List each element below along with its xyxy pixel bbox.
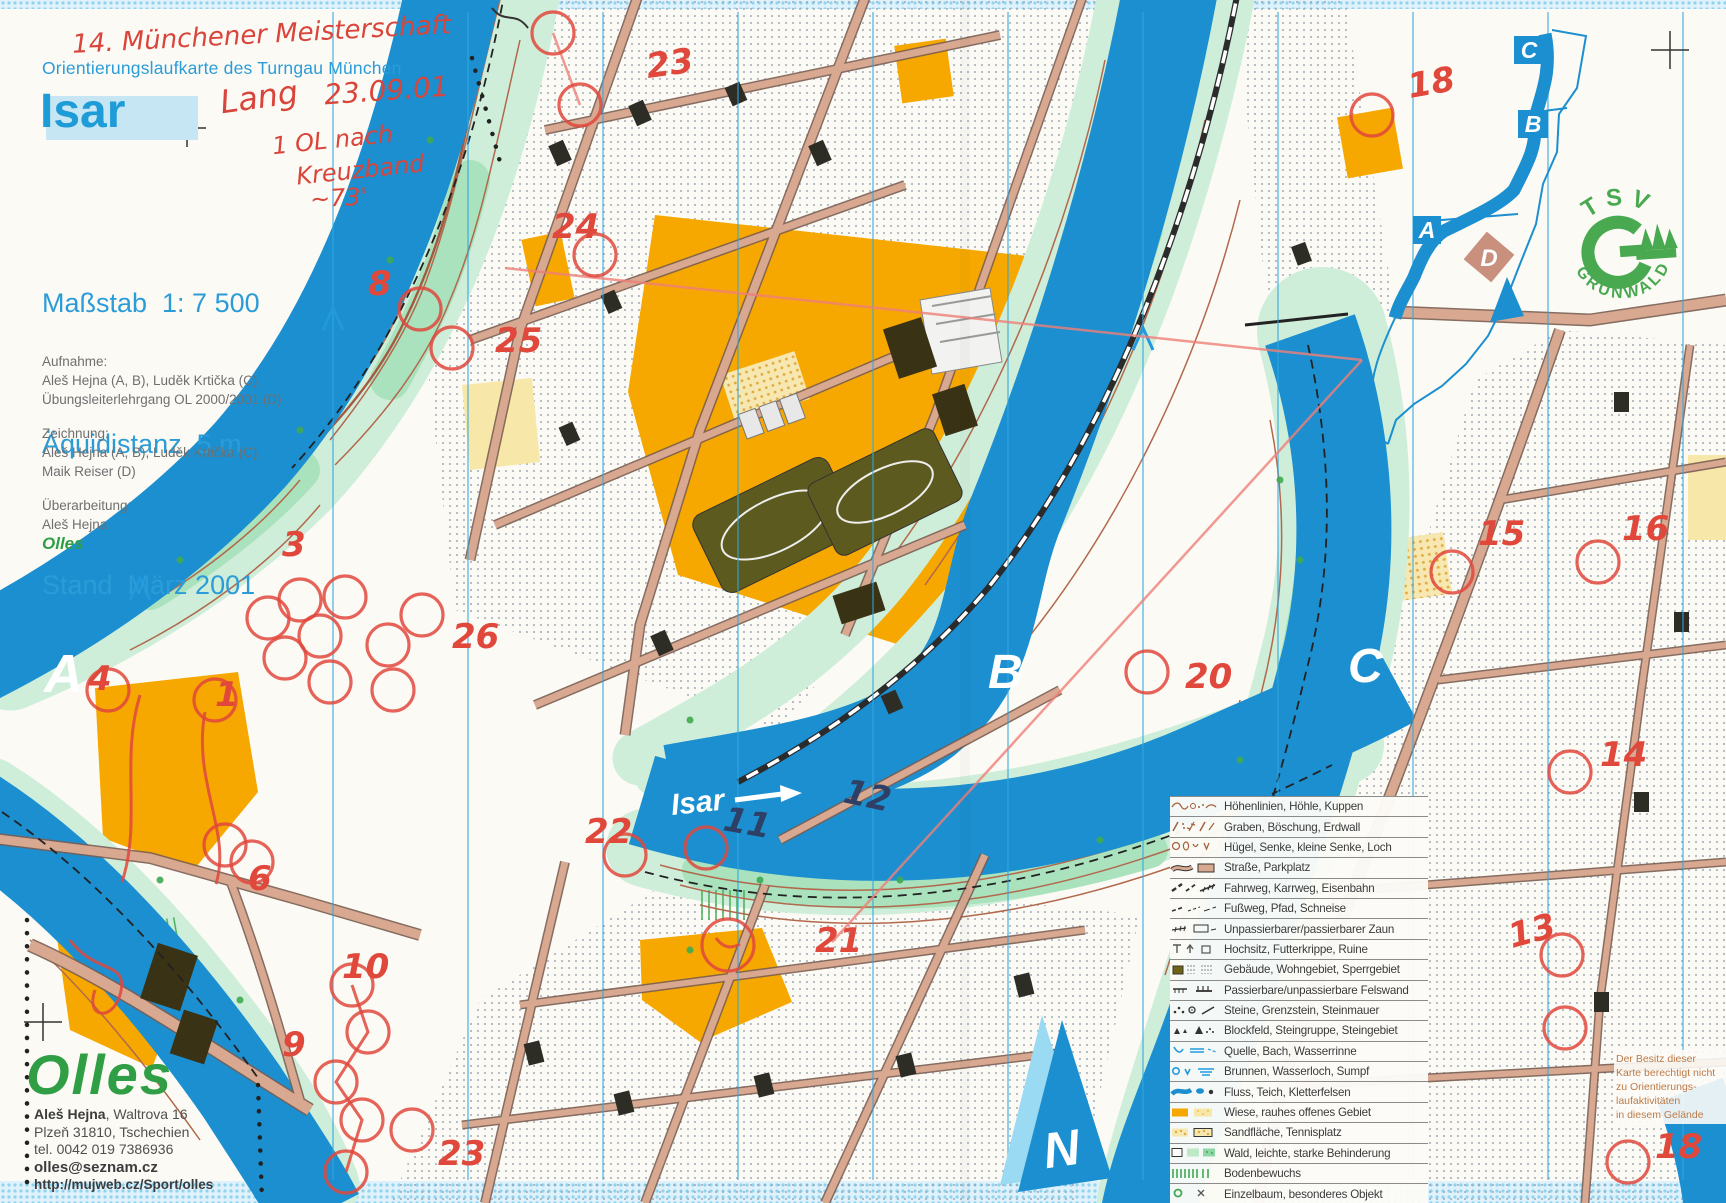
control-number: 9 [282,1025,306,1065]
legend-label: Quelle, Bach, Wasserrinne [1224,1045,1356,1058]
legend-label: Fahrweg, Karrweg, Eisenbahn [1224,882,1375,895]
credits-block: Aufnahme: Aleš Hejna (A, B), Luděk Krtič… [42,352,282,568]
fahrweg-icon [1170,880,1224,896]
olles-logo: Olles [26,1042,173,1107]
legend-row: Steine, Grenzstein, Steinmauer [1170,1000,1428,1020]
hochsitz-icon [1170,941,1224,957]
legend-label: Blockfeld, Steingruppe, Steingebiet [1224,1024,1397,1037]
legend-label: Gebäude, Wohngebiet, Sperrgebiet [1224,963,1400,976]
disclaimer-line: laufaktivitäten [1616,1094,1726,1108]
legend-label: Hochsitz, Futterkrippe, Ruine [1224,943,1368,956]
steine-icon [1170,1003,1224,1019]
control-number: 25 [495,321,542,361]
legend-row: Wald, leichte, starke Behinderung [1170,1143,1428,1163]
blockfeld-icon [1170,1023,1224,1039]
publisher-address: Aleš Hejna, Waltrova 16 Plzeň 31810, Tsc… [34,1106,213,1194]
legend-label: Sandfläche, Tennisplatz [1224,1126,1342,1139]
legend-box: Höhenlinien, Höhle, KuppenGraben, Böschu… [1170,796,1428,1203]
overview-label-c: C [1521,37,1538,63]
legend-label: Fußweg, Pfad, Schneise [1224,902,1346,915]
publisher-phone: tel. 0042 019 7386936 [34,1141,213,1159]
felswand-icon [1170,982,1224,998]
handwritten-time: ~73' [309,183,368,214]
legend-row: Einzelbaum, besonderes Objekt [1170,1183,1428,1203]
disclaimer-line: Der Besitz dieser [1616,1052,1726,1066]
control-number: 11 [720,799,774,847]
survey-credit: Aufnahme: Aleš Hejna (A, B), Luděk Krtič… [42,352,282,409]
legend-label: Höhenlinien, Höhle, Kuppen [1224,800,1363,813]
quelle-icon [1170,1043,1224,1059]
legend-label: Einzelbaum, besonderes Objekt [1224,1188,1383,1201]
legend-row: Höhenlinien, Höhle, Kuppen [1170,796,1428,816]
legend-row: Brunnen, Wasserloch, Sumpf [1170,1061,1428,1081]
legend-row: Fahrweg, Karrweg, Eisenbahn [1170,878,1428,898]
control-number: 26 [452,617,499,657]
control-number: 23 [438,1134,485,1174]
sand-icon [1170,1125,1224,1141]
survey-heading: Aufnahme: [42,352,282,371]
control-number: 16 [1622,509,1669,549]
revision-olles: Olles [42,534,282,553]
graben-icon [1170,819,1224,835]
publisher-city: Plzeň 31810, Tschechien [34,1124,213,1142]
control-number: 6 [248,859,272,899]
overview-label-b: B [1525,111,1542,137]
legend-row: Unpassierbarer/passierbarer Zaun [1170,918,1428,938]
revision-credit: Überarbeitung: Aleš Hejna Olles [42,496,282,553]
disclaimer-line: Karte berechtigt nicht [1616,1066,1726,1080]
wald-icon [1170,1145,1224,1161]
river-label: Isar [669,783,728,822]
drawing-line1: Aleš Hejna (A, B), Luděk Krtička (C), [42,443,282,462]
map-disclaimer: Der Besitz dieser Karte berechtigt nicht… [1614,1050,1726,1124]
stand-label: Stand März 2001 [42,562,260,609]
control-number: 10 [342,947,389,987]
control-number: 1 [215,675,239,715]
legend-label: Passierbare/unpassierbare Felswand [1224,984,1409,997]
drawing-heading: Zeichnung: [42,424,282,443]
legend-label: Wiese, rauhes offenes Gebiet [1224,1106,1371,1119]
legend-row: Passierbare/unpassierbare Felswand [1170,980,1428,1000]
legend-label: Straße, Parkplatz [1224,861,1310,874]
brunnen-icon [1170,1064,1224,1080]
survey-line2: Übungsleiterlehrgang OL 2000/2001 (D) [42,390,282,409]
overview-label-a: A [1418,217,1436,243]
revision-heading: Überarbeitung: [42,496,282,515]
control-number: 18 [1655,1127,1702,1167]
disclaimer-line: zu Orientierungs- [1616,1080,1726,1094]
legend-row: Blockfeld, Steingruppe, Steingebiet [1170,1020,1428,1040]
legend-row: Wiese, rauhes offenes Gebiet [1170,1102,1428,1122]
wiese-icon [1170,1105,1224,1121]
legend-row: Straße, Parkplatz [1170,857,1428,877]
legend-label: Unpassierbarer/passierbarer Zaun [1224,923,1394,936]
control-number: 18 [1405,59,1459,107]
legend-label: Wald, leichte, starke Behinderung [1224,1147,1390,1160]
publisher-website: http://mujweb.cz/Sport/olles [34,1176,213,1194]
overview-label-d: D [1480,245,1497,272]
legend-row: Graben, Böschung, Erdwall [1170,816,1428,836]
contours-icon [1170,799,1224,815]
control-number: 21 [815,921,862,961]
legend-row: Quelle, Bach, Wasserrinne [1170,1041,1428,1061]
publisher-name-line: Aleš Hejna, Waltrova 16 [34,1106,213,1124]
legend-row: Bodenbewuchs [1170,1163,1428,1183]
drawing-credit: Zeichnung: Aleš Hejna (A, B), Luděk Krti… [42,424,282,481]
legend-row: Fußweg, Pfad, Schneise [1170,898,1428,918]
revision-line1: Aleš Hejna [42,515,282,534]
publisher-street: , Waltrova 16 [106,1106,188,1122]
control-number: 15 [1478,514,1525,554]
legend-row: Hochsitz, Futterkrippe, Ruine [1170,939,1428,959]
legend-label: Hügel, Senke, kleine Senke, Loch [1224,841,1392,854]
strasse-icon [1170,860,1224,876]
legend-label: Bodenbewuchs [1224,1167,1301,1180]
survey-line1: Aleš Hejna (A, B), Luděk Krtička (C), [42,371,282,390]
disclaimer-line: in diesem Gelände [1616,1108,1726,1122]
legend-label: Fluss, Teich, Kletterfelsen [1224,1086,1350,1099]
publisher-name: Aleš Hejna [34,1106,106,1122]
scale-label: Maßstab 1: 7 500 [42,280,260,327]
paper-crease [960,0,970,1203]
control-number: 22 [585,812,632,852]
map-title: Isar [40,84,125,139]
fluss-icon [1170,1084,1224,1100]
section-label-c: C [1348,640,1384,693]
control-number: 8 [368,264,392,304]
fussweg-icon [1170,901,1224,917]
publisher-email: olles@seznam.cz [34,1159,213,1177]
control-number: 20 [1185,657,1232,697]
control-number: 23 [644,41,696,87]
control-number: 4 [87,659,112,699]
legend-row: Gebäude, Wohngebiet, Sperrgebiet [1170,959,1428,979]
bodenbewuchs-icon [1170,1166,1224,1182]
huegel-icon [1170,839,1224,855]
gebaeude-icon [1170,962,1224,978]
control-number: 3 [282,525,306,565]
control-number: 24 [552,207,599,247]
legend-label: Brunnen, Wasserloch, Sumpf [1224,1065,1369,1078]
section-label-b: B [988,646,1023,699]
drawing-line2: Maik Reiser (D) [42,462,282,481]
legend-row: Fluss, Teich, Kletterfelsen [1170,1081,1428,1101]
einzelbaum-icon [1170,1186,1224,1202]
zaun-icon [1170,921,1224,937]
legend-label: Steine, Grenzstein, Steinmauer [1224,1004,1379,1017]
legend-label: Graben, Böschung, Erdwall [1224,821,1360,834]
control-number: 14 [1600,735,1647,775]
legend-row: Hügel, Senke, kleine Senke, Loch [1170,837,1428,857]
scanned-orienteering-map: C B A D TSV GRÜNWALD N [0,0,1726,1203]
legend-row: Sandfläche, Tennisplatz [1170,1122,1428,1142]
